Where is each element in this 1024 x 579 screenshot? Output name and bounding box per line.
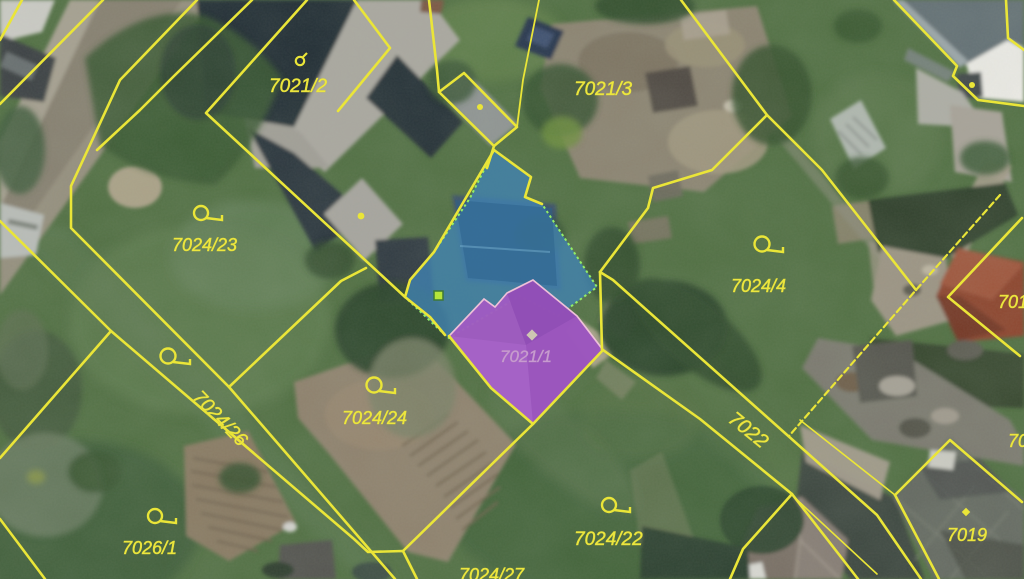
svg-text:7021/3: 7021/3: [574, 79, 633, 100]
svg-text:7021/2: 7021/2: [269, 76, 328, 97]
svg-text:7021/1: 7021/1: [500, 347, 552, 366]
svg-text:7024/4: 7024/4: [731, 276, 786, 296]
svg-text:7018: 7018: [998, 292, 1024, 312]
svg-text:7018: 7018: [1008, 431, 1024, 451]
svg-text:7024/23: 7024/23: [172, 235, 237, 255]
svg-text:7024/22: 7024/22: [574, 529, 643, 550]
svg-text:7024/24: 7024/24: [342, 408, 407, 428]
svg-text:7019: 7019: [947, 525, 987, 545]
svg-text:7024/27: 7024/27: [459, 565, 525, 579]
svg-text:7026/1: 7026/1: [122, 538, 177, 558]
